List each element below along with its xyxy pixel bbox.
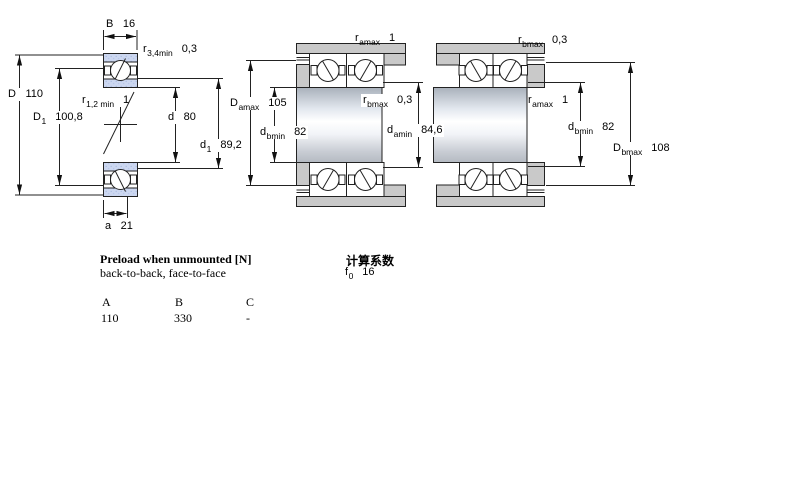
bearing-spec-page: B16 r3,4min0,3 D110 D1100,8 r1,2 min1 d8… — [0, 0, 800, 500]
dim-label-r12min: r1,2 min1 — [82, 94, 129, 107]
dim-label-d: d80 — [166, 111, 198, 124]
factor-f0: f016 — [345, 266, 375, 279]
dim-label-rbmax-right: rbmax0,3 — [518, 34, 567, 47]
dim-label-dbmin-right: dbmin82 — [566, 121, 616, 134]
preload-title: Preload when unmounted [N] — [100, 252, 251, 267]
dim-label-d1: d189,2 — [198, 139, 244, 152]
dim-label-damin: damin84,6 — [385, 124, 444, 137]
dim-label-ramax-middle: ramax1 — [355, 32, 395, 45]
dim-label-r34min: r3,4min0,3 — [143, 43, 197, 56]
dim-label-B: B16 — [106, 18, 135, 31]
dim-label-D1: D1100,8 — [31, 111, 85, 124]
preload-col-C: C — [246, 295, 254, 310]
bearing-drawing — [0, 0, 800, 500]
preload-col-B: B — [175, 295, 183, 310]
dim-label-rbmax-middle: rbmax0,3 — [361, 94, 414, 107]
preload-col-A: A — [102, 295, 111, 310]
preload-value-C: - — [246, 311, 250, 326]
preload-value-A: 110 — [101, 311, 119, 326]
dim-label-D: D110 — [6, 88, 45, 101]
shaft-right — [434, 88, 528, 163]
dim-label-ramax-right: ramax1 — [528, 94, 568, 107]
dim-label-Dbmax: Dbmax108 — [611, 142, 672, 155]
dim-label-dbmin-middle: dbmin82 — [258, 126, 308, 139]
dim-label-a: a21 — [105, 220, 133, 233]
preload-value-B: 330 — [174, 311, 192, 326]
dim-label-Damax: Damax105 — [228, 97, 289, 110]
preload-subtitle: back-to-back, face-to-face — [100, 266, 226, 281]
